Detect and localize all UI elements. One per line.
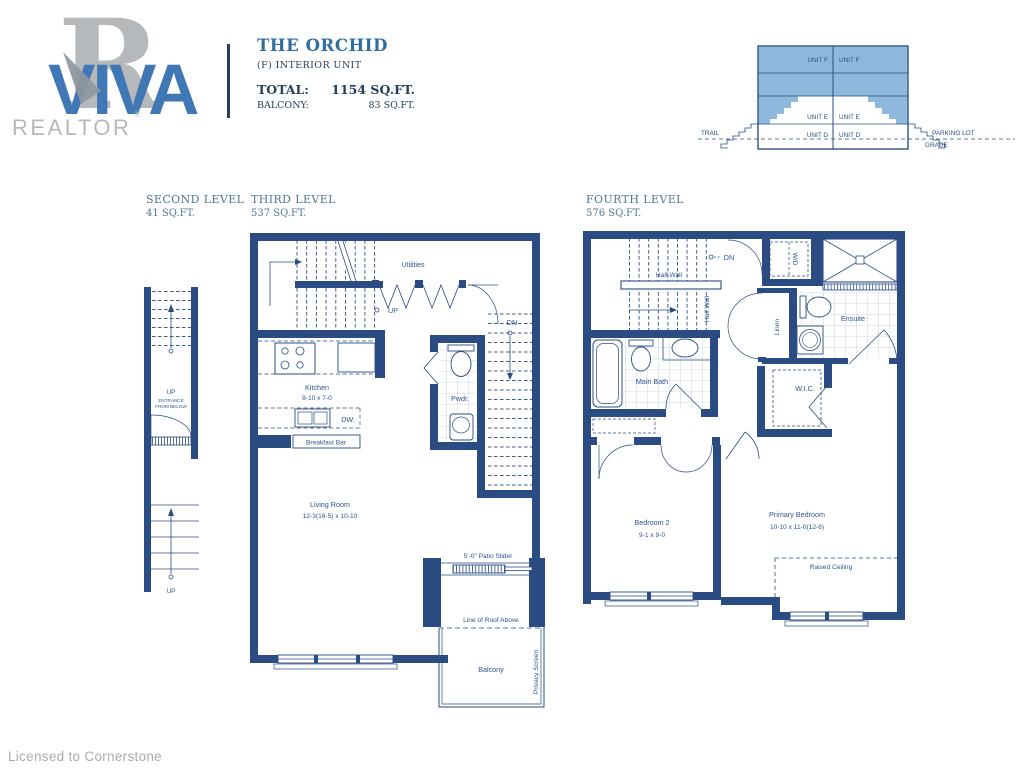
utilities-label: Utilities <box>401 260 425 269</box>
unit-d-left-label: UNIT D <box>807 132 829 139</box>
total-row: TOTAL: 1154 SQ.FT. <box>257 82 415 97</box>
stair-dn-treads <box>486 306 532 489</box>
bedroom2-label: Bedroom 2 <box>634 518 669 527</box>
unit-f-right-label: UNIT F <box>839 57 860 64</box>
kitchen-label: Kitchen <box>305 383 329 392</box>
ensuite-toilet-bowl <box>807 297 831 317</box>
up-label: UP <box>388 306 398 315</box>
lower-stair-treads <box>151 505 199 569</box>
license-text: Licensed to Cornerstone <box>8 749 162 764</box>
bedroom2-window <box>605 592 698 606</box>
unit-d-right-label: UNIT D <box>839 132 861 139</box>
wic-shelving <box>773 370 821 426</box>
third-level-header: THIRD LEVEL 537 SQ.FT. <box>251 193 336 219</box>
living-room-dims: 12-3(16-5) x 10-10 <box>303 513 358 520</box>
line-of-roof-label: Line of Roof Above <box>463 617 519 624</box>
toilet-bowl <box>451 352 471 377</box>
parking-lot-label: PARKING LOT <box>932 130 975 137</box>
up-label-bottom: UP <box>167 588 176 595</box>
second-level-header: SECOND LEVEL 41 SQ.FT. <box>146 193 244 219</box>
threshold-hatch <box>151 437 191 445</box>
bedroom2-dims: 9-1 x 9-0 <box>639 532 665 539</box>
realtor-text: REALTOR <box>12 115 131 140</box>
registered-mark: ® <box>134 109 141 119</box>
dn-label: DN <box>724 253 734 262</box>
unit-e-right-label: UNIT E <box>839 114 860 121</box>
stair-up-lower-treads <box>295 288 383 330</box>
ensuite-toilet-tank <box>800 296 806 318</box>
entry-door <box>151 415 191 445</box>
mb-toilet-bowl <box>632 347 651 371</box>
raised-ceiling-label: Raised Ceiling <box>810 564 853 571</box>
third-level-name: THIRD LEVEL <box>251 193 336 206</box>
third-level-plan: UP Utilities DN <box>248 228 550 718</box>
shower-stall <box>823 239 897 290</box>
unit-f-left-label: UNIT F <box>808 57 829 64</box>
total-label: TOTAL: <box>257 82 309 97</box>
patio-slider <box>441 563 532 575</box>
utilities-bifold-left <box>379 285 415 308</box>
grade-label: GRADE <box>925 142 948 149</box>
trail-steps <box>721 124 758 148</box>
page-title: THE ORCHID <box>257 36 417 55</box>
pwdr-label: Pwdr. <box>451 394 469 403</box>
entrance-label-2: FROM BELOW <box>155 404 187 409</box>
floorplan-sheet: R VIVA REALTOR ® THE ORCHID (F) INTERIOR… <box>0 0 1022 768</box>
total-value: 1154 SQ.FT. <box>331 82 415 97</box>
primary-window <box>785 612 868 626</box>
third-level-area: 537 SQ.FT. <box>251 208 336 219</box>
second-level-area: 41 SQ.FT. <box>146 208 244 219</box>
fourth-level-header: FOURTH LEVEL 576 SQ.FT. <box>586 193 684 219</box>
fourth-level-area: 576 SQ.FT. <box>586 208 684 219</box>
balcony-row: BALCONY: 83 SQ.FT. <box>257 100 415 111</box>
second-level-name: SECOND LEVEL <box>146 193 244 206</box>
half-wall-label-h: Half Wall <box>656 272 683 279</box>
closet-shelf <box>593 419 655 433</box>
fourth-level-plan: DN Half Wall Half Wall W/D Linen <box>581 226 907 662</box>
trail-label: TRAIL <box>701 130 720 137</box>
washer-dryer-closet <box>770 242 808 276</box>
unit-subtitle: (F) INTERIOR UNIT <box>257 60 417 71</box>
breakfast-bar-label: Breakfast Bar <box>306 440 347 447</box>
stove <box>275 343 315 374</box>
entrance-label-1: ENTRANCE <box>158 398 183 403</box>
living-room-window <box>274 655 397 669</box>
up-arrow-bottom <box>168 508 174 579</box>
hall-double-doors <box>728 293 762 359</box>
linen-label: Linen <box>774 319 781 335</box>
fourth-level-name: FOURTH LEVEL <box>586 193 684 206</box>
title-block: THE ORCHID (F) INTERIOR UNIT TOTAL: 1154… <box>257 36 417 111</box>
unit-e-left-label: UNIT E <box>807 114 828 121</box>
viva-realtor-logo: R VIVA REALTOR ® <box>6 2 228 144</box>
bathtub <box>593 340 622 407</box>
privacy-screen-label: Privacy Screen <box>533 649 540 694</box>
half-wall-label-v: Half Wall <box>704 295 711 322</box>
half-wall-landing <box>621 281 721 289</box>
utilities-bifold-right <box>423 285 459 308</box>
mb-toilet-tank <box>629 340 653 346</box>
building-cross-section: UNIT F UNIT F UNIT E UNIT E UNIT D UNIT … <box>695 40 1020 155</box>
kitchen-dims: 8-10 x 7-0 <box>302 395 332 402</box>
balcony-label: Balcony <box>478 665 504 674</box>
header-divider <box>227 44 230 118</box>
toilet-tank <box>448 345 474 351</box>
wd-label: W/D <box>791 253 798 266</box>
second-level-plan: UP ENTRANCE FROM BELOW UP <box>140 282 210 604</box>
ensuite-label: Ensuite <box>841 314 865 323</box>
living-room-label: Living Room <box>310 500 350 509</box>
primary-door <box>726 432 759 459</box>
balcony-value: 83 SQ.FT. <box>368 100 415 111</box>
main-bath-label: Main Bath <box>636 377 668 386</box>
pwdr-door <box>424 352 438 384</box>
mb-sink <box>672 339 698 357</box>
patio-slider-label: 5'-0" Patio Slider <box>464 553 513 560</box>
ensuite-sink-counter <box>797 326 823 354</box>
wic-label: W.I.C. <box>795 384 815 393</box>
primary-label: Primary Bedroom <box>769 510 825 519</box>
dw-label: DW. <box>341 415 355 424</box>
fridge <box>338 343 375 372</box>
up-label-top: UP <box>167 389 176 396</box>
primary-dims: 10-10 x 11-0(12-6) <box>770 524 824 531</box>
balcony-label: BALCONY: <box>257 100 309 111</box>
